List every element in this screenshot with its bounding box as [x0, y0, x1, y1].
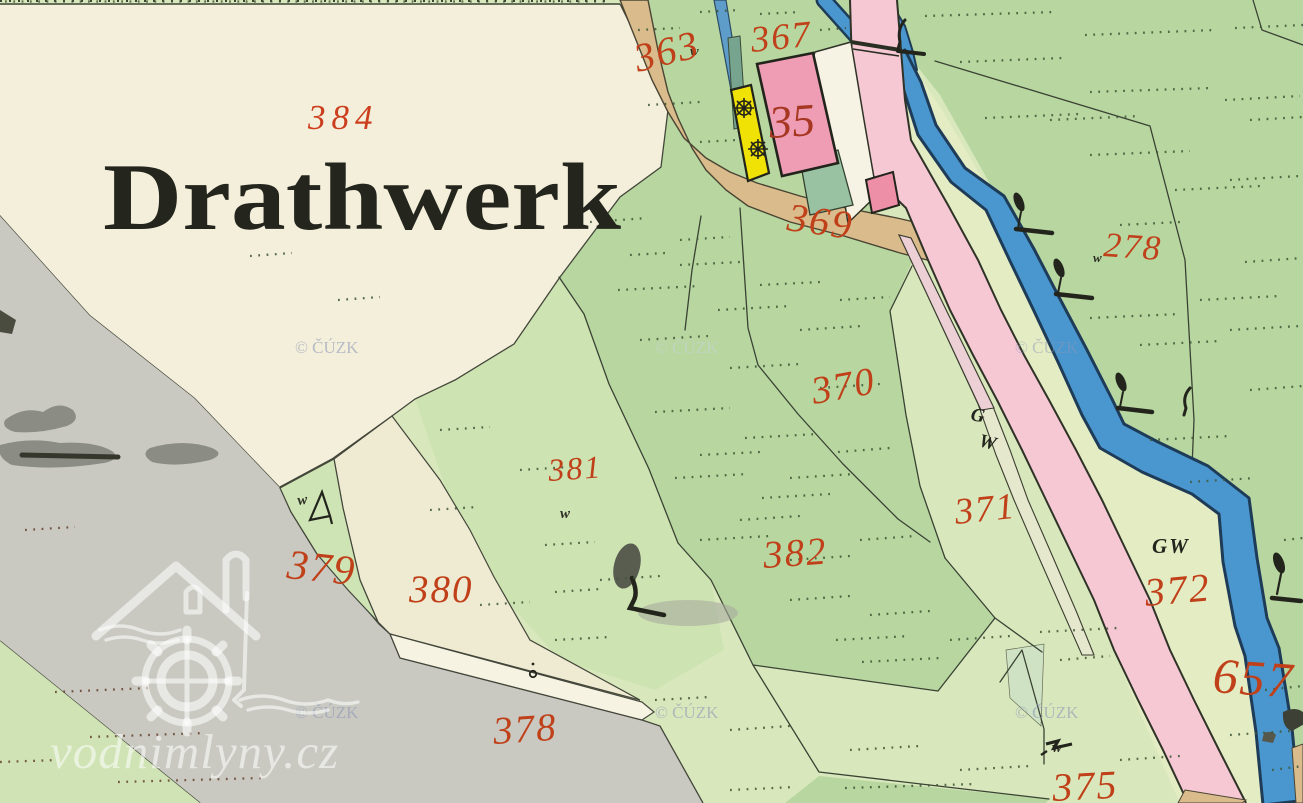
svg-text:371: 371 — [952, 486, 1018, 533]
svg-text:w: w — [1093, 250, 1102, 265]
svg-text:375: 375 — [1050, 762, 1119, 803]
svg-text:381: 381 — [546, 448, 603, 488]
svg-text:367: 367 — [748, 14, 814, 61]
svg-text:372: 372 — [1142, 564, 1213, 615]
svg-text:© ČÚZK: © ČÚZK — [295, 338, 359, 357]
svg-text:w: w — [560, 506, 571, 522]
svg-text:© ČÚZK: © ČÚZK — [655, 338, 719, 357]
svg-text:657: 657 — [1211, 647, 1296, 709]
svg-text:369: 369 — [784, 194, 857, 248]
svg-text:278: 278 — [1102, 225, 1163, 268]
svg-text:© ČÚZK: © ČÚZK — [655, 703, 719, 722]
svg-text:378: 378 — [491, 706, 559, 753]
svg-text:vodnimlyny.cz: vodnimlyny.cz — [50, 724, 339, 779]
svg-text:382: 382 — [761, 530, 829, 577]
svg-text:384: 384 — [307, 98, 379, 137]
svg-text:Drathwerk: Drathwerk — [103, 144, 621, 250]
svg-text:© ČÚZK: © ČÚZK — [1015, 338, 1079, 357]
svg-text:© ČÚZK: © ČÚZK — [1015, 703, 1079, 722]
svg-text:35: 35 — [766, 94, 816, 148]
svg-text:379: 379 — [284, 542, 358, 595]
svg-text:GW: GW — [1152, 534, 1189, 558]
svg-text:380: 380 — [408, 568, 474, 611]
